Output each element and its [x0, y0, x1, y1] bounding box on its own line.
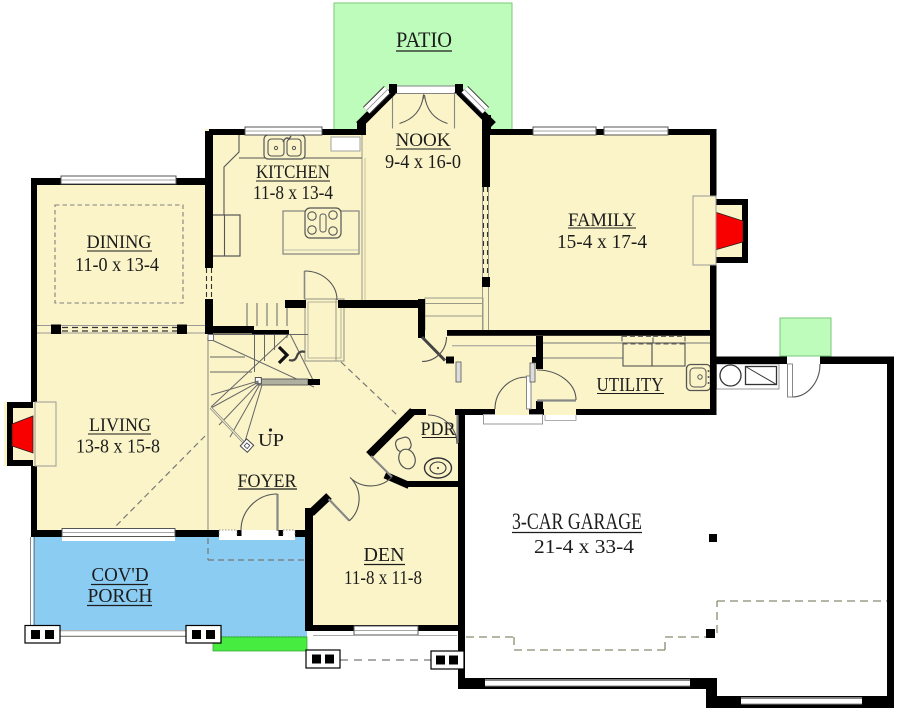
svg-text:13-8 x 15-8: 13-8 x 15-8 — [76, 436, 160, 458]
svg-text:9-4 x 16-0: 9-4 x 16-0 — [385, 151, 461, 173]
svg-text:11-8 x 13-4: 11-8 x 13-4 — [253, 182, 333, 204]
svg-text:PDR: PDR — [421, 419, 456, 440]
svg-text:NOOK: NOOK — [396, 130, 451, 151]
svg-text:3-CAR GARAGE: 3-CAR GARAGE — [512, 509, 642, 534]
svg-text:DEN: DEN — [364, 544, 405, 566]
svg-text:11-8 x 11-8: 11-8 x 11-8 — [344, 567, 422, 589]
svg-text:UTILITY: UTILITY — [597, 374, 664, 396]
svg-text:COV'D: COV'D — [92, 564, 149, 586]
svg-text:15-4 x 17-4: 15-4 x 17-4 — [557, 231, 647, 253]
svg-text:UP: UP — [258, 430, 284, 450]
svg-text:11-0 x 13-4: 11-0 x 13-4 — [75, 254, 159, 276]
svg-text:PATIO: PATIO — [396, 27, 452, 52]
svg-text:KITCHEN: KITCHEN — [256, 162, 330, 183]
svg-text:21-4 x 33-4: 21-4 x 33-4 — [534, 536, 634, 558]
svg-text:PORCH: PORCH — [88, 585, 153, 607]
svg-text:LIVING: LIVING — [89, 415, 151, 436]
svg-text:DINING: DINING — [87, 232, 152, 253]
